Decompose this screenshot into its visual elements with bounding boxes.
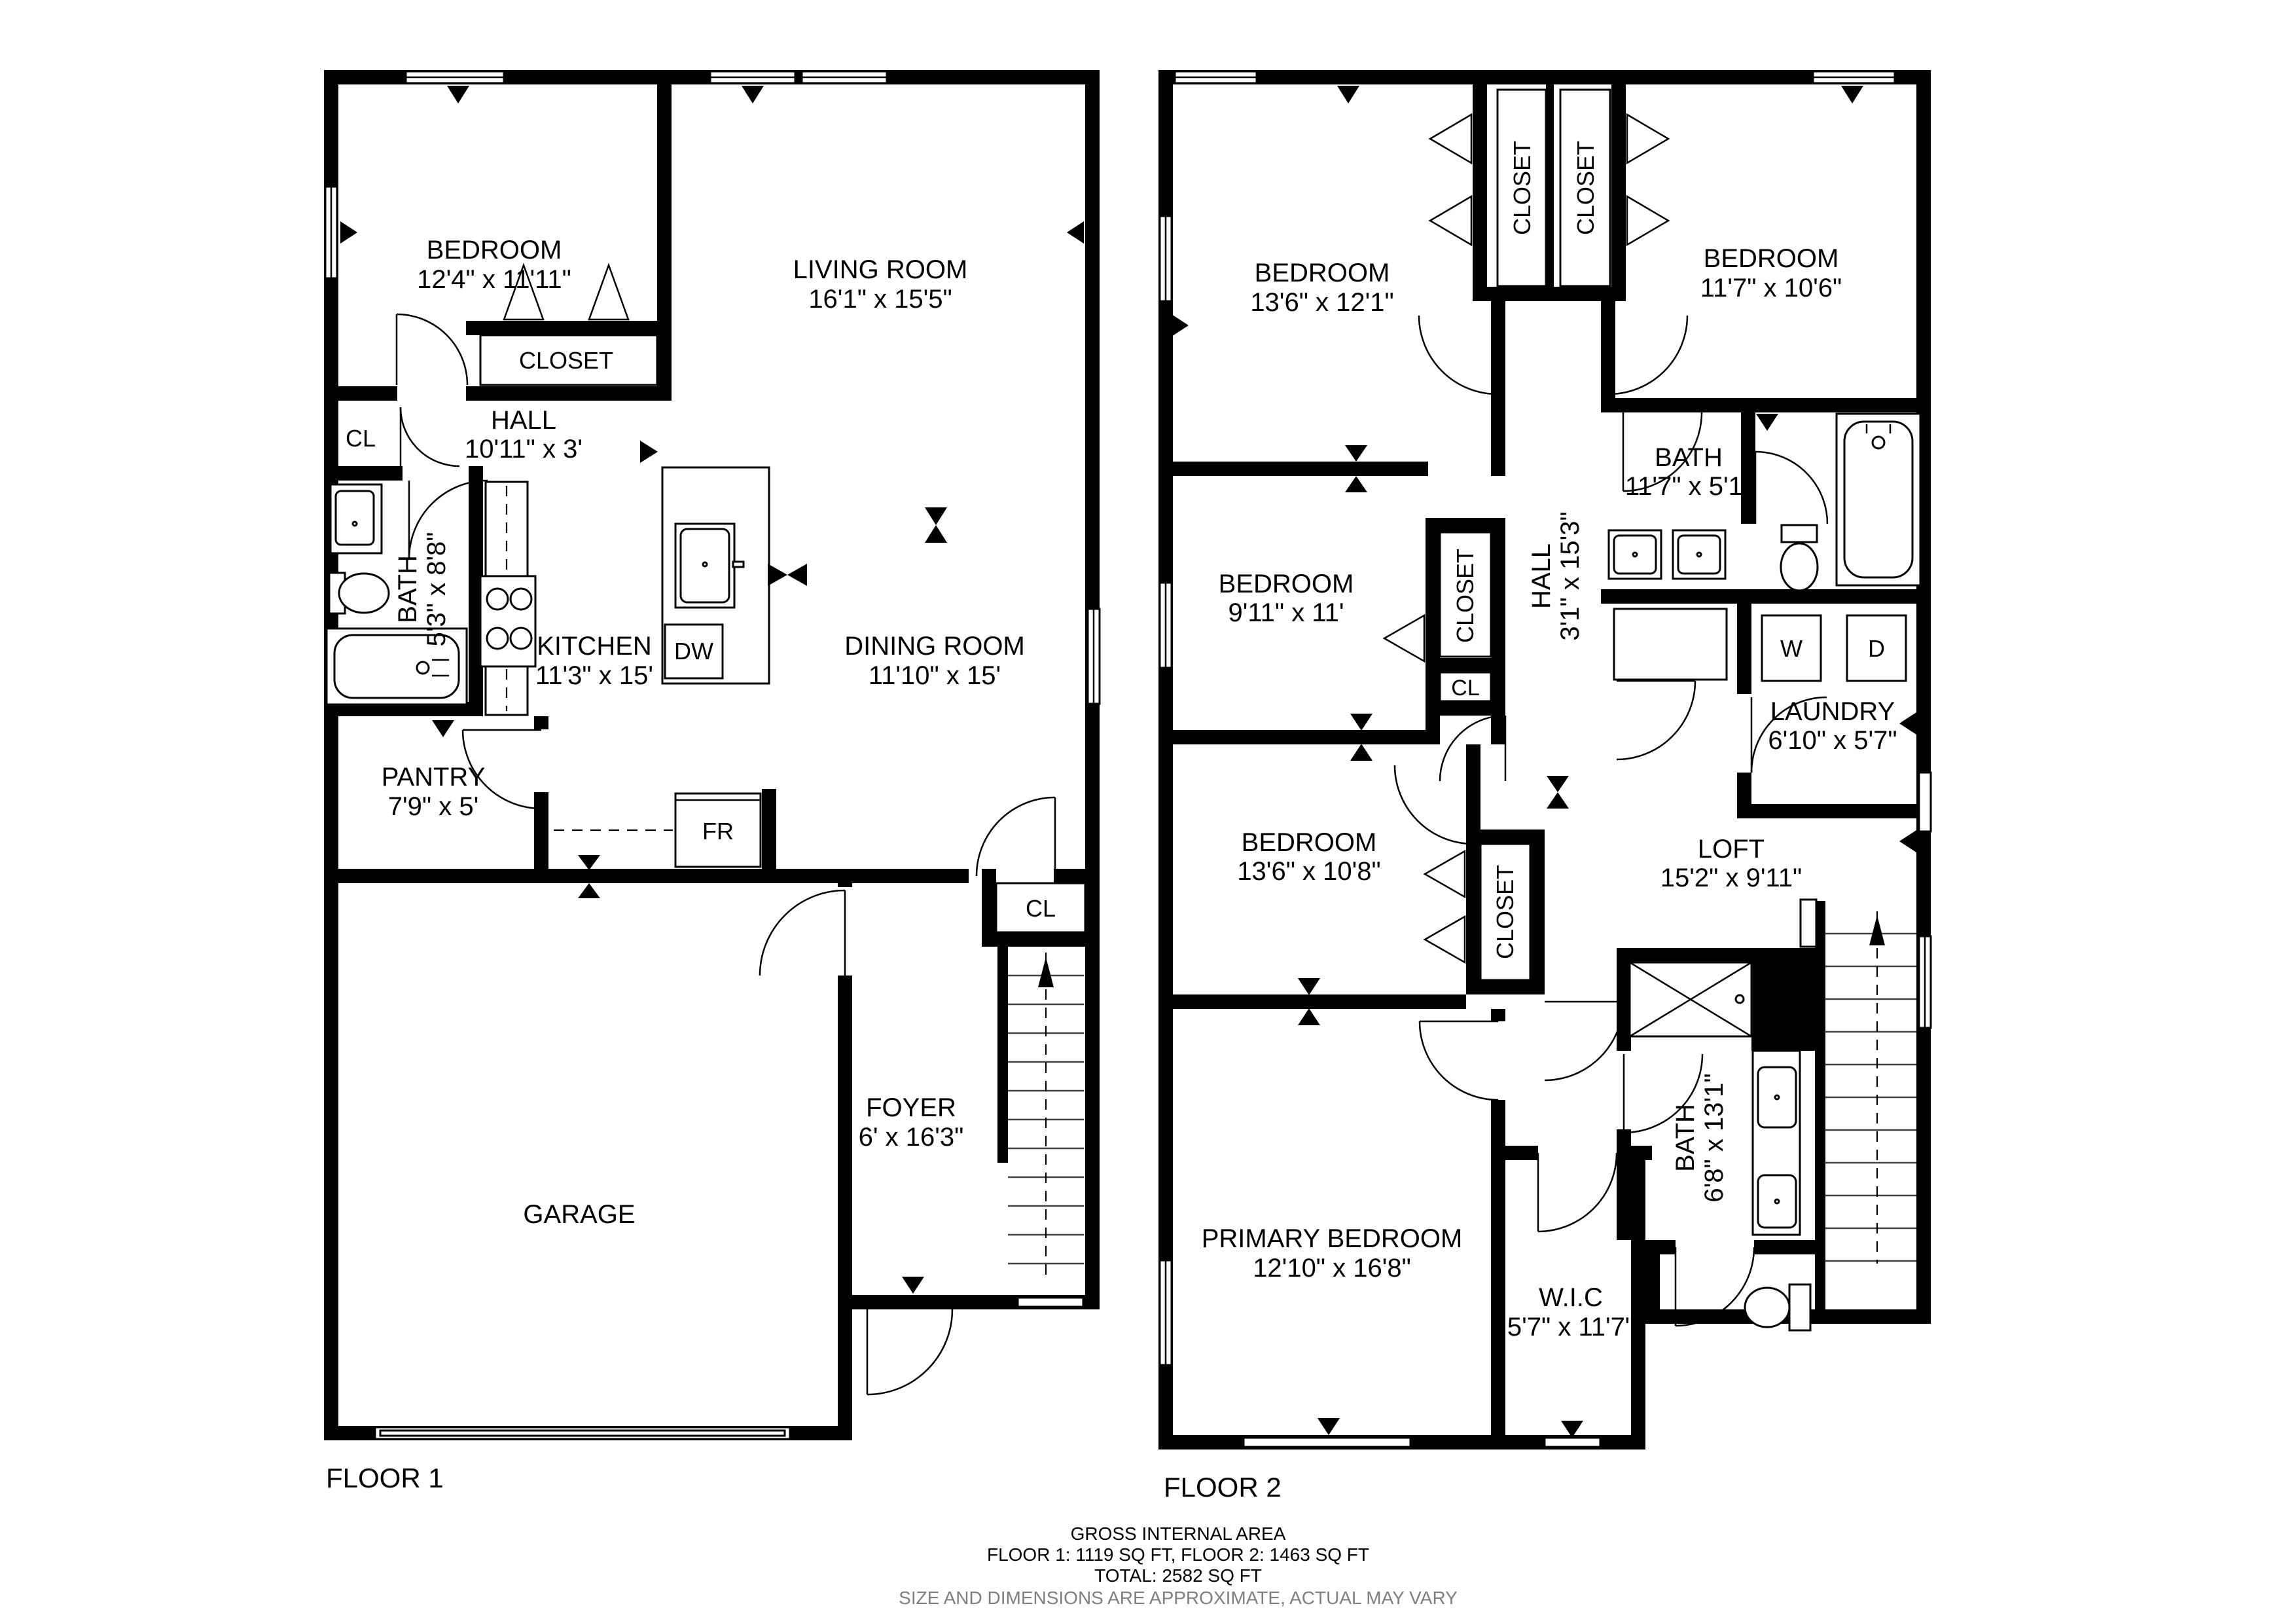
svg-text:HALL: HALL [1527,543,1556,609]
floor1-pantry-name: PANTRY [382,763,486,792]
floorplan-page: BEDROOM 12'4" x 11'11" LIVING ROOM 16'1"… [0,0,2296,1623]
floor1-bedroom-name: BEDROOM [427,236,562,264]
footer-total-area: TOTAL: 2582 SQ FT [1094,1565,1262,1586]
svg-text:5'3" x 8'8": 5'3" x 8'8" [422,532,451,647]
floor2-closet4-label: CLOSET [1492,865,1518,959]
floor2-bedroom2-dims: 11'7" x 10'6" [1700,274,1842,302]
floor2-bath1-name: BATH [1655,443,1723,472]
floor2-wic-dims: 5'7" x 11'7" [1507,1313,1634,1341]
linen-closet-box [1614,609,1727,680]
floor1-title: FLOOR 1 [326,1463,444,1493]
floor1-living-name: LIVING ROOM [793,255,968,284]
svg-text:BATH: BATH [393,555,422,623]
floor2-stairs [1825,911,1916,1264]
floor1-foyer-dims: 6' x 16'3" [859,1123,964,1152]
floor1-bedroom-dims: 12'4" x 11'11" [417,265,571,294]
floor2-bedroom2-name: BEDROOM [1704,244,1839,273]
floor2-laundry-name: LAUNDRY [1770,697,1895,726]
floor1-hall-dims: 10'11" x 3' [465,435,583,464]
floor2-loft-name: LOFT [1698,835,1765,864]
floorplan-drawing: BEDROOM 12'4" x 11'11" LIVING ROOM 16'1"… [0,0,2296,1623]
floor2-bath2-label: BATH 6'8" x 13'1" [1671,1073,1729,1202]
floor2-washer-label: W [1780,635,1803,662]
bath1-toilet [1782,525,1817,542]
floor1-fr-label: FR [702,818,734,845]
floor1-living-dims: 16'1" x 15'5" [808,285,952,314]
floor1-cl-foyer-label: CL [1026,895,1056,922]
svg-text:6'8" x 13'1": 6'8" x 13'1" [1700,1073,1729,1202]
floor2-closet3-label: CLOSET [1452,549,1479,643]
floor2-closet1-label: CLOSET [1509,141,1535,235]
floor1-stairs [1008,953,1084,1280]
footer: GROSS INTERNAL AREA FLOOR 1: 1119 SQ FT,… [899,1523,1458,1608]
floor2-bath1-dims: 11'7" x 5'1" [1625,472,1752,501]
svg-text:BATH: BATH [1671,1104,1700,1172]
floor1-dining-name: DINING ROOM [844,632,1025,661]
floor1-plan: BEDROOM 12'4" x 11'11" LIVING ROOM 16'1"… [324,70,1100,1493]
floor2-plan: BEDROOM 13'6" x 12'1" CLOSET CLOSET BEDR… [1158,70,1931,1503]
floor1-hall-name: HALL [491,406,556,435]
floor2-bedroom4-name: BEDROOM [1242,828,1377,857]
floor2-loft-dims: 15'2" x 9'11" [1660,864,1802,892]
floor2-bedroom1-name: BEDROOM [1255,259,1390,287]
floor1-pantry-dims: 7'9" x 5' [388,792,478,821]
floor2-hall-label: HALL 3'1" x 15'3" [1527,511,1585,640]
floor2-dryer-label: D [1868,635,1885,662]
floor2-bedroom3-dims: 9'11" x 11' [1229,598,1344,627]
floor2-bedroom1-dims: 13'6" x 12'1" [1250,288,1393,317]
floor1-garage-label: GARAGE [523,1200,635,1229]
floor2-title: FLOOR 2 [1164,1472,1282,1503]
floor2-bedroom4-dims: 13'6" x 10'8" [1237,857,1380,886]
footer-disclaimer: SIZE AND DIMENSIONS ARE APPROXIMATE, ACT… [899,1588,1458,1608]
floor1-cl-hall-label: CL [346,425,376,452]
floor2-bedroom3-name: BEDROOM [1219,570,1354,598]
floor1-kitchen-dims: 11'3" x 15' [535,661,653,690]
floor2-laundry-dims: 6'10" x 5'7" [1768,726,1897,755]
floor1-dw-label: DW [674,638,713,665]
floor1-dining-dims: 11'10" x 15' [869,661,1001,690]
floor2-primary-name: PRIMARY BEDROOM [1202,1224,1463,1253]
svg-text:3'1" x 15'3": 3'1" x 15'3" [1556,511,1585,640]
floor1-kitchen-name: KITCHEN [537,632,652,661]
bath2-toilet [1745,1288,1789,1327]
floor1-closet-label: CLOSET [519,347,613,374]
floor2-closet2-label: CLOSET [1572,141,1599,235]
floor2-primary-dims: 12'10" x 16'8" [1253,1254,1411,1283]
footer-gross-area: GROSS INTERNAL AREA [1071,1523,1286,1544]
floor1-foyer-name: FOYER [866,1093,956,1122]
floor2-cl-label: CL [1451,676,1479,701]
footer-floor-areas: FLOOR 1: 1119 SQ FT, FLOOR 2: 1463 SQ FT [987,1544,1369,1565]
floor2-wic-name: W.I.C [1539,1283,1603,1312]
